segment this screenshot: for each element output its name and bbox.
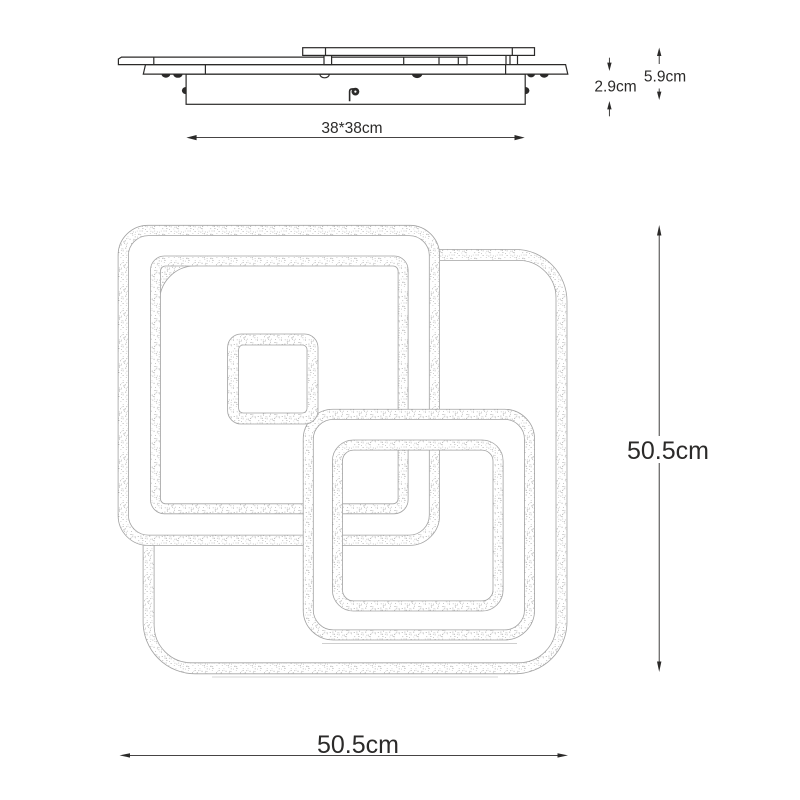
svg-text:50.5cm: 50.5cm [627,437,709,465]
svg-text:50.5cm: 50.5cm [317,731,399,759]
svg-text:2.9cm: 2.9cm [594,79,636,96]
svg-text:38*38cm: 38*38cm [321,120,382,137]
svg-text:5.9cm: 5.9cm [644,68,686,85]
